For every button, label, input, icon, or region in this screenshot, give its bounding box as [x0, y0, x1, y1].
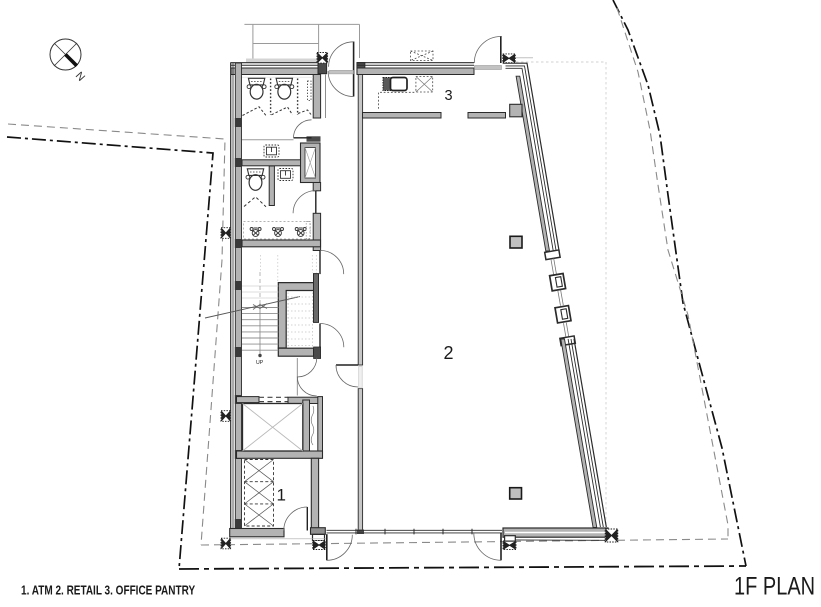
svg-text:N: N — [73, 70, 87, 84]
svg-text:1: 1 — [277, 486, 286, 505]
svg-text:2: 2 — [444, 343, 454, 363]
svg-text:1F PLAN: 1F PLAN — [734, 572, 815, 600]
svg-text:1. ATM 2. RETAIL 3. OFFICE PAN: 1. ATM 2. RETAIL 3. OFFICE PANTRY — [21, 583, 195, 598]
svg-text:3: 3 — [445, 88, 453, 104]
svg-text:UP: UP — [256, 360, 264, 366]
